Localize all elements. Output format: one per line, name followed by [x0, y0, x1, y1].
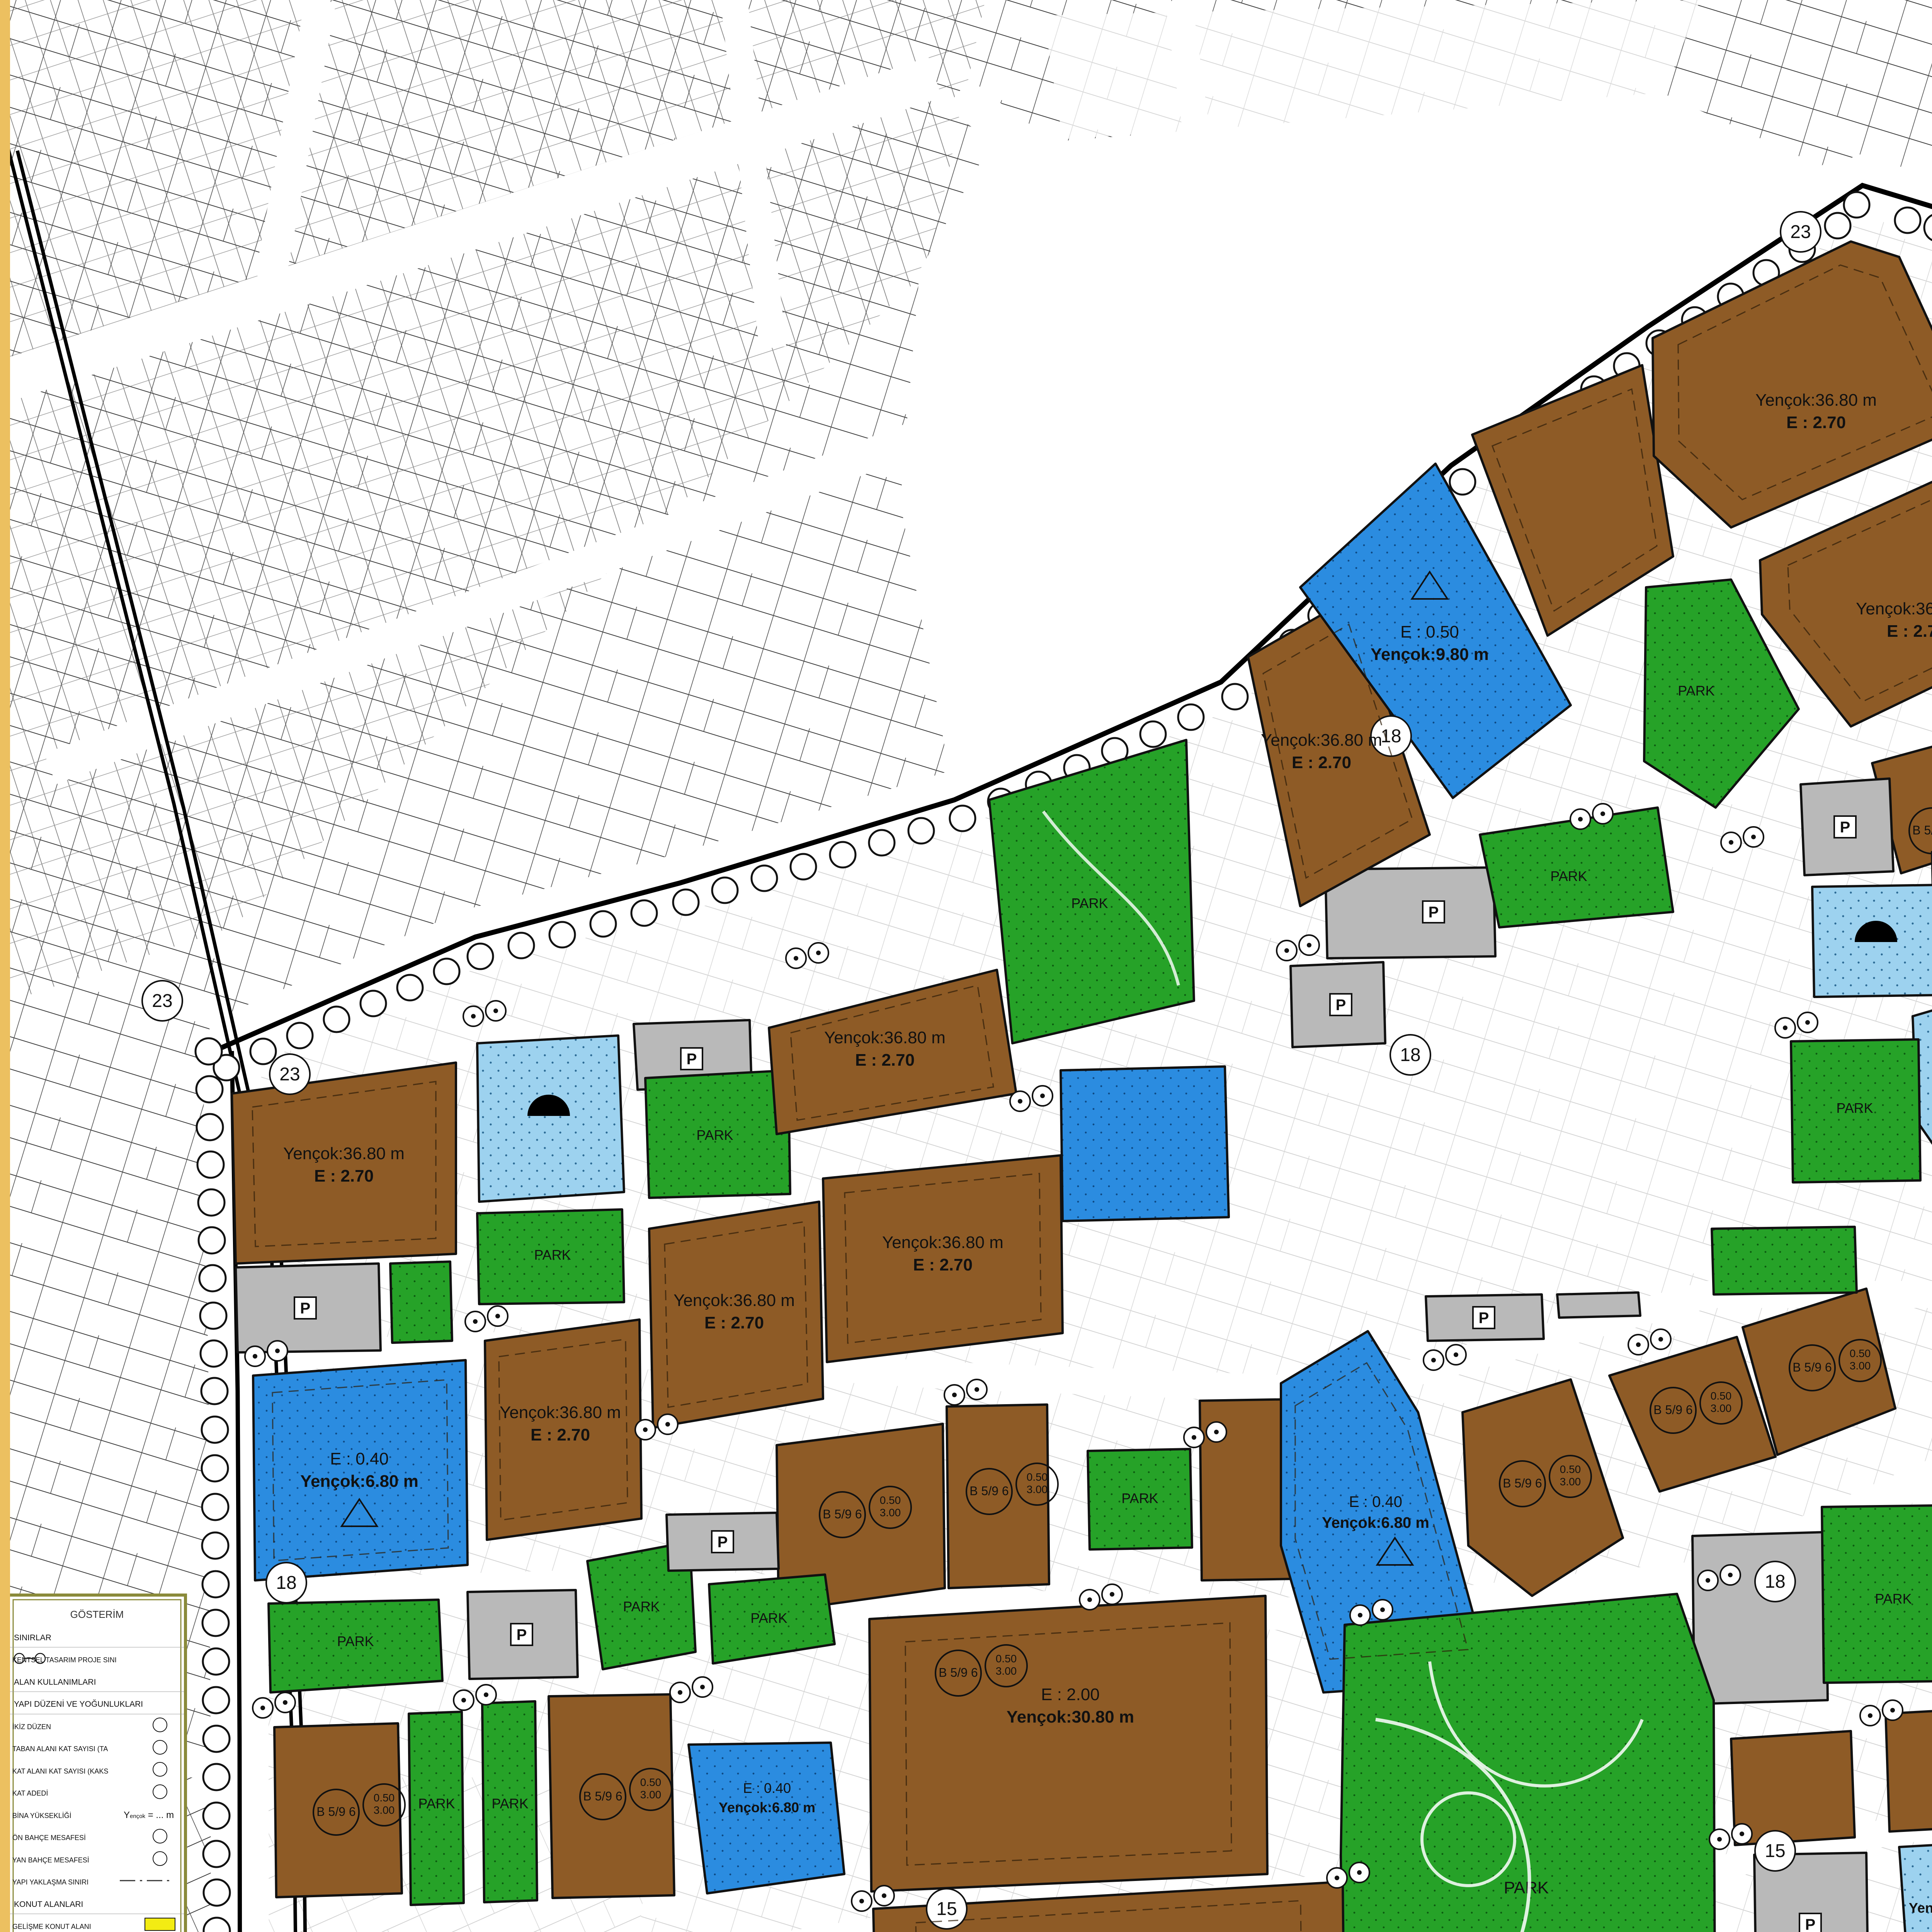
svg-text:E : 0.50: E : 0.50	[1400, 622, 1459, 641]
svg-text:P: P	[300, 1300, 311, 1317]
svg-text:P: P	[517, 1626, 527, 1643]
svg-text:P: P	[1805, 1916, 1816, 1932]
svg-text:KENTSEL TASARIM PROJE SINI: KENTSEL TASARIM PROJE SINI	[12, 1656, 117, 1664]
svg-text:Yençok:36.80 m: Yençok:36.80 m	[500, 1403, 621, 1422]
svg-text:Yençok:36.80 m: Yençok:36.80 m	[283, 1144, 405, 1163]
svg-text:18: 18	[1765, 1571, 1785, 1592]
svg-text:E : 2.70: E : 2.70	[704, 1313, 764, 1332]
svg-text:18: 18	[1381, 726, 1401, 747]
svg-text:Yençok:6.80 m: Yençok:6.80 m	[1909, 1900, 1932, 1916]
svg-text:3.00: 3.00	[1850, 1360, 1871, 1372]
svg-text:15: 15	[1765, 1841, 1785, 1861]
svg-text:PARK: PARK	[1550, 868, 1587, 884]
svg-text:KAT ADEDİ: KAT ADEDİ	[12, 1789, 48, 1797]
svg-text:E : 2.00: E : 2.00	[1041, 1685, 1100, 1704]
svg-text:E : 2.70: E : 2.70	[913, 1255, 973, 1274]
svg-text:15: 15	[936, 1899, 957, 1919]
svg-text:Yençok:36.80 m: Yençok:36.80 m	[824, 1028, 946, 1047]
svg-text:PARK: PARK	[1875, 1591, 1912, 1607]
svg-text:3.00: 3.00	[1027, 1483, 1048, 1495]
svg-text:3.00: 3.00	[880, 1507, 901, 1519]
svg-text:PARK: PARK	[1121, 1490, 1158, 1506]
svg-text:0.50: 0.50	[640, 1776, 662, 1788]
svg-text:0.50: 0.50	[1027, 1471, 1048, 1483]
svg-text:B 5/9 6: B 5/9 6	[1503, 1476, 1542, 1490]
svg-text:Yençok:9.80 m: Yençok:9.80 m	[1371, 645, 1489, 664]
svg-text:3.00: 3.00	[996, 1665, 1017, 1677]
svg-text:PARK: PARK	[1071, 895, 1108, 911]
svg-text:E : 2.70: E : 2.70	[1786, 413, 1846, 432]
svg-text:0.50: 0.50	[1850, 1347, 1871, 1359]
svg-text:PARK: PARK	[534, 1247, 571, 1263]
svg-text:B 5/9 6: B 5/9 6	[316, 1805, 355, 1819]
svg-text:YAN BAHÇE MESAFESİ: YAN BAHÇE MESAFESİ	[12, 1856, 89, 1864]
svg-text:18: 18	[1400, 1045, 1420, 1065]
svg-text:PARK: PARK	[492, 1796, 528, 1811]
svg-text:PARK: PARK	[623, 1599, 660, 1614]
svg-text:GELİŞME KONUT ALANI: GELİŞME KONUT ALANI	[12, 1923, 91, 1930]
svg-text:18: 18	[276, 1573, 296, 1593]
svg-text:PARK: PARK	[1836, 1100, 1873, 1116]
svg-text:Yençok:6.80 m: Yençok:6.80 m	[1322, 1514, 1429, 1531]
svg-text:İKİZ DÜZEN: İKİZ DÜZEN	[12, 1723, 51, 1731]
svg-text:BİNA YÜKSEKLİĞİ: BİNA YÜKSEKLİĞİ	[12, 1811, 71, 1820]
svg-text:E : 0.40: E : 0.40	[330, 1449, 389, 1468]
svg-text:3.00: 3.00	[640, 1789, 662, 1801]
svg-text:P: P	[1429, 904, 1439, 921]
svg-text:3.00: 3.00	[1711, 1402, 1732, 1414]
svg-text:B 5/9 6: B 5/9 6	[939, 1666, 978, 1680]
svg-text:PARK: PARK	[750, 1610, 787, 1626]
svg-text:TABAN ALANI KAT SAYISI (TA: TABAN ALANI KAT SAYISI (TA	[12, 1745, 108, 1753]
svg-text:P: P	[1479, 1310, 1489, 1327]
svg-text:PARK: PARK	[337, 1633, 374, 1649]
svg-text:B 5/9 6: B 5/9 6	[969, 1484, 1009, 1498]
svg-text:B 5/9 6: B 5/9 6	[583, 1789, 622, 1803]
svg-text:0.50: 0.50	[880, 1494, 901, 1506]
svg-text:3.00: 3.00	[1560, 1476, 1581, 1488]
svg-text:PARK: PARK	[1678, 683, 1714, 699]
svg-text:Yençok:30.80 m: Yençok:30.80 m	[1007, 1708, 1134, 1726]
svg-text:PARK: PARK	[1504, 1878, 1549, 1897]
svg-text:3.00: 3.00	[374, 1804, 395, 1816]
svg-text:P: P	[1336, 997, 1346, 1014]
svg-text:ÖN BAHÇE MESAFESİ: ÖN BAHÇE MESAFESİ	[12, 1834, 86, 1842]
svg-text:PARK: PARK	[696, 1127, 733, 1143]
svg-text:YAPI DÜZENİ VE YOĞUNLUKLARI: YAPI DÜZENİ VE YOĞUNLUKLARI	[14, 1700, 143, 1709]
svg-text:SINIRLAR: SINIRLAR	[14, 1633, 51, 1642]
svg-text:P: P	[718, 1534, 728, 1551]
svg-text:Yençok:36.80 m: Yençok:36.80 m	[882, 1233, 1003, 1252]
svg-text:E : 0.40: E : 0.40	[1349, 1493, 1402, 1510]
svg-text:Yençok:6.80 m: Yençok:6.80 m	[719, 1799, 815, 1815]
svg-text:KAT ALANI KAT SAYISI (KAKS: KAT ALANI KAT SAYISI (KAKS	[12, 1767, 108, 1775]
svg-text:P: P	[1840, 819, 1850, 836]
svg-text:Yençok:36.80 m: Yençok:36.80 m	[1856, 599, 1932, 618]
svg-text:E : 0.40: E : 0.40	[743, 1780, 791, 1796]
svg-text:P: P	[687, 1051, 697, 1068]
svg-text:YAPI YAKLAŞMA SINIRI: YAPI YAKLAŞMA SINIRI	[12, 1878, 88, 1886]
svg-text:0.50: 0.50	[374, 1792, 395, 1804]
svg-text:Yençok:36.80 m: Yençok:36.80 m	[673, 1291, 795, 1310]
svg-text:23: 23	[279, 1064, 300, 1085]
svg-text:GÖSTERİM: GÖSTERİM	[70, 1609, 124, 1620]
svg-text:0.50: 0.50	[996, 1653, 1017, 1665]
svg-text:E : 2.70: E : 2.70	[855, 1051, 915, 1070]
svg-text:E : 2.70: E : 2.70	[1887, 622, 1932, 641]
svg-text:E : 2.70: E : 2.70	[531, 1425, 590, 1444]
svg-text:ALAN KULLANIMLARI: ALAN KULLANIMLARI	[14, 1678, 96, 1687]
svg-text:KONUT ALANLARI: KONUT ALANLARI	[14, 1900, 83, 1909]
svg-text:0.50: 0.50	[1711, 1390, 1732, 1402]
svg-text:B 5/9 6: B 5/9 6	[1912, 823, 1932, 837]
svg-text:Yençok:36.80 m: Yençok:36.80 m	[1755, 391, 1877, 410]
svg-text:E : 2.70: E : 2.70	[314, 1167, 374, 1185]
svg-text:PARK: PARK	[418, 1796, 455, 1811]
svg-text:B 5/9 6: B 5/9 6	[823, 1507, 862, 1521]
svg-text:E : 2.70: E : 2.70	[1292, 753, 1351, 772]
svg-text:23: 23	[152, 991, 172, 1011]
svg-text:0.50: 0.50	[1560, 1463, 1581, 1475]
svg-text:B 5/9 6: B 5/9 6	[1653, 1403, 1692, 1417]
svg-text:B 5/9 6: B 5/9 6	[1793, 1361, 1832, 1374]
svg-text:23: 23	[1790, 222, 1811, 242]
svg-text:Yençok:6.80 m: Yençok:6.80 m	[300, 1472, 418, 1491]
